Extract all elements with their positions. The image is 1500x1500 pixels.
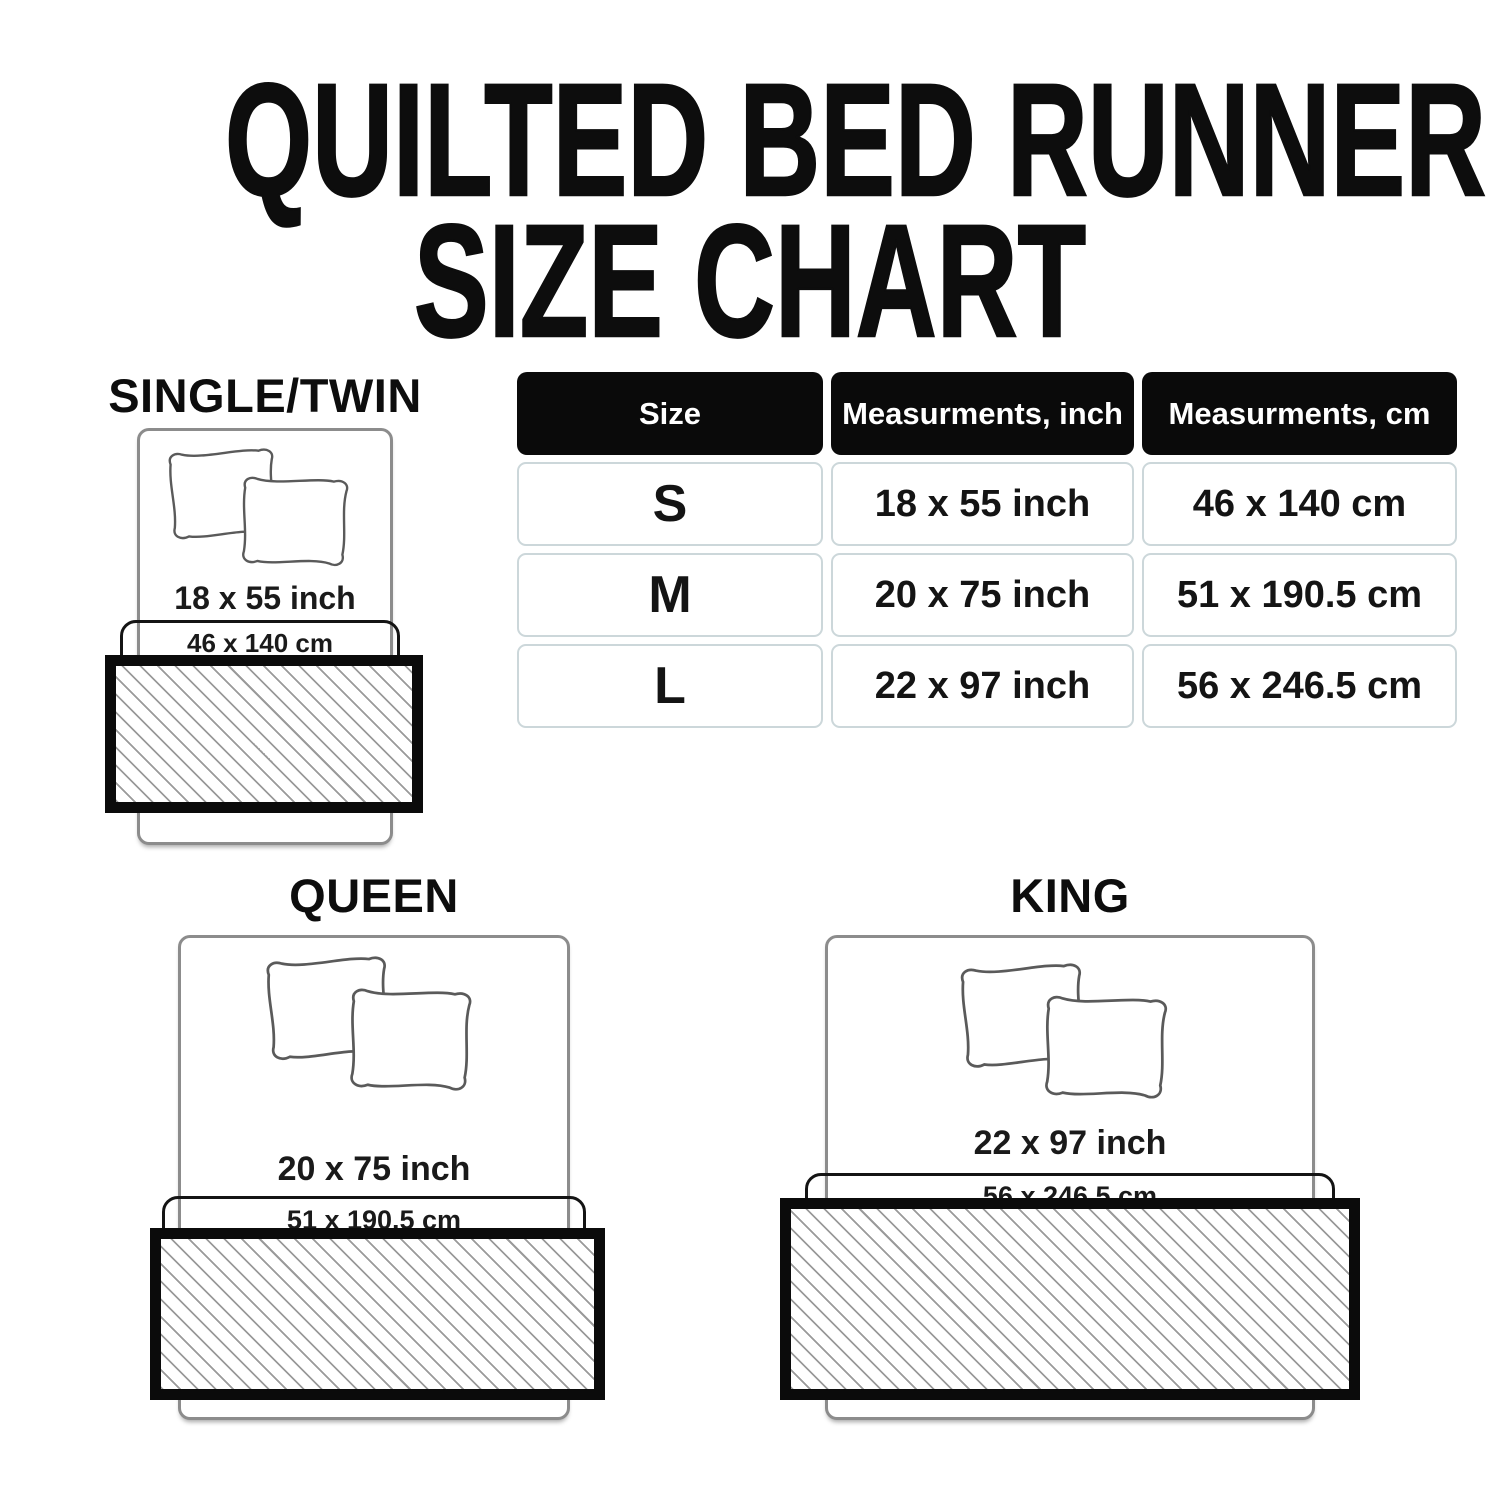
table-header-cm: Measurments, cm xyxy=(1142,372,1457,455)
diagram-king: KING 22 x 97 inch 56 x 246.5 cm xyxy=(765,868,1377,1483)
table-cell-size-l: L xyxy=(517,644,823,728)
pillows-icon xyxy=(260,956,486,1103)
table-header-size: Size xyxy=(517,372,823,455)
size-table: Size Measurments, inch Measurments, cm S… xyxy=(517,372,1457,728)
pillows-icon xyxy=(163,448,361,577)
page-title-line2: SIZE CHART xyxy=(414,191,1086,370)
page-title: QUILTED BED RUNNER SIZE CHART xyxy=(225,70,1275,352)
diagram-king-label: KING xyxy=(765,868,1375,923)
table-cell-inch-s: 18 x 55 inch xyxy=(831,462,1134,546)
table-cell-cm-s: 46 x 140 cm xyxy=(1142,462,1457,546)
diagram-single-twin-label: SINGLE/TWIN xyxy=(100,368,430,423)
table-cell-size-m: M xyxy=(517,553,823,637)
diagram-queen-inch-label: 20 x 75 inch xyxy=(178,1150,570,1189)
pillows-icon xyxy=(954,963,1182,1111)
pillow-icon xyxy=(1045,997,1166,1098)
table-cell-inch-m: 20 x 75 inch xyxy=(831,553,1134,637)
runner-hatch xyxy=(780,1198,1360,1400)
size-chart-infographic: QUILTED BED RUNNER SIZE CHART Size Measu… xyxy=(0,0,1500,1500)
diagram-single-twin-inch-label: 18 x 55 inch xyxy=(137,580,393,617)
table-cell-cm-l: 56 x 246.5 cm xyxy=(1142,644,1457,728)
pillow-icon xyxy=(242,478,347,566)
runner-hatch xyxy=(150,1228,605,1400)
table-header-inch: Measurments, inch xyxy=(831,372,1134,455)
diagram-single-twin: SINGLE/TWIN 18 x 55 inch 46 x 140 cm xyxy=(100,368,430,873)
table-cell-size-s: S xyxy=(517,462,823,546)
table-cell-cm-m: 51 x 190.5 cm xyxy=(1142,553,1457,637)
diagram-queen: QUEEN 20 x 75 inch 51 x 190.5 cm xyxy=(140,868,620,1483)
diagram-king-inch-label: 22 x 97 inch xyxy=(825,1124,1315,1163)
runner-hatch xyxy=(105,655,423,813)
diagram-queen-label: QUEEN xyxy=(140,868,608,923)
pillow-icon xyxy=(350,990,470,1090)
table-cell-inch-l: 22 x 97 inch xyxy=(831,644,1134,728)
